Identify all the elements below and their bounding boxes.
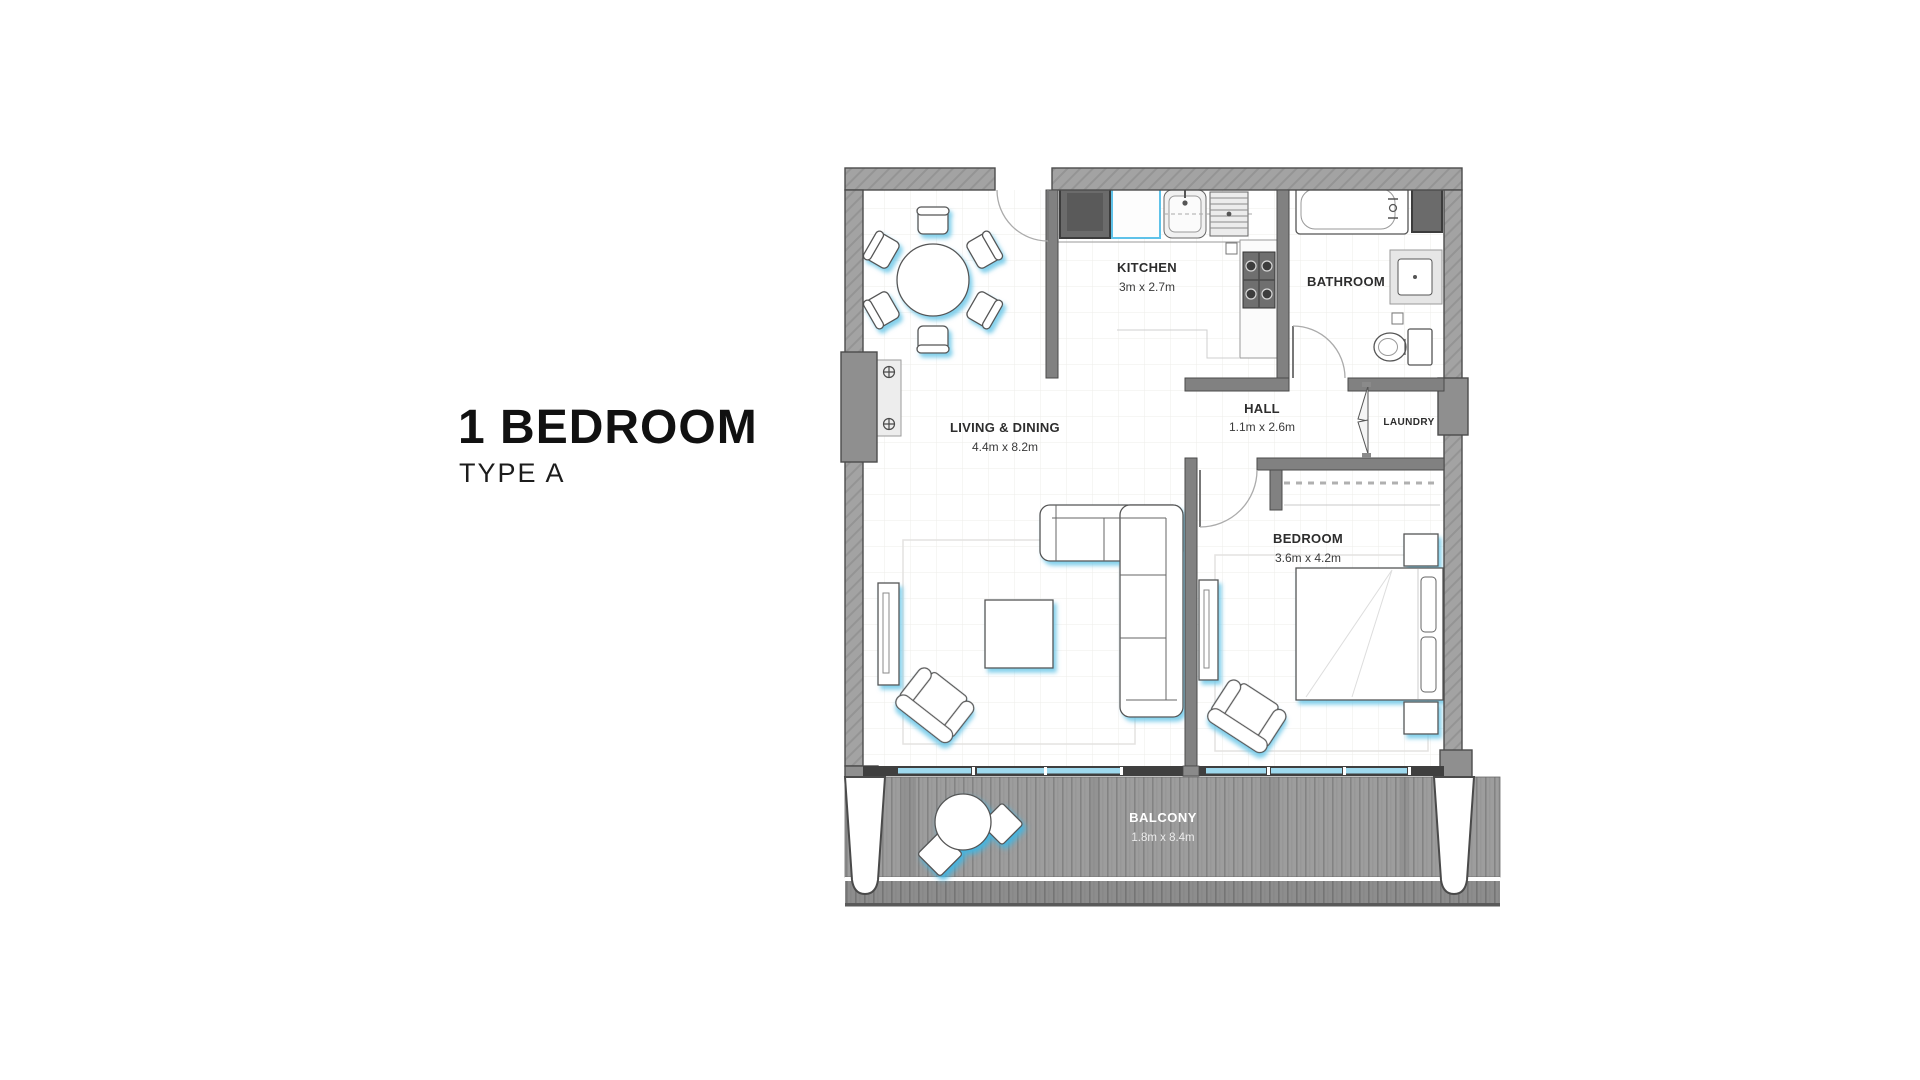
wall-top-left <box>845 168 995 190</box>
bedroom-dims: 3.6m x 4.2m <box>1275 551 1341 565</box>
wall-top-right <box>1052 168 1462 190</box>
planter-right <box>1434 777 1474 894</box>
kitchen-drainer <box>1210 192 1248 236</box>
kitchen-label: KITCHEN <box>1117 260 1177 275</box>
wall-left-column <box>841 352 877 462</box>
vanity-sink <box>1390 250 1442 304</box>
wall-right-stub <box>1440 750 1472 778</box>
wall-panel <box>877 360 901 436</box>
living-dims: 4.4m x 8.2m <box>972 440 1038 454</box>
balcony-dims: 1.8m x 8.4m <box>1131 832 1194 844</box>
wall-right <box>1444 190 1462 790</box>
hall-label: HALL <box>1244 401 1280 416</box>
bedroom-label: BEDROOM <box>1273 531 1343 546</box>
wall-kitchen-bath <box>1277 190 1289 391</box>
wall-wardrobe-stub <box>1270 470 1282 510</box>
balcony-table <box>935 794 991 850</box>
bathroom-small-box <box>1392 313 1403 324</box>
dining-table <box>897 244 969 316</box>
bed <box>1296 568 1443 700</box>
hall-dims: 1.1m x 2.6m <box>1229 420 1295 434</box>
kitchen-dims: 3m x 2.7m <box>1119 280 1175 294</box>
stove <box>1243 252 1275 308</box>
balcony-label: BALCONY <box>1129 810 1197 825</box>
page: 1 BEDROOM TYPE A <box>0 0 1920 1080</box>
laundry-label: LAUNDRY <box>1383 417 1434 428</box>
wall-bedroom-top <box>1257 458 1444 470</box>
kitchen-appliance <box>1112 186 1160 238</box>
bathtub <box>1296 184 1408 234</box>
nightstand <box>1404 534 1438 566</box>
living-console <box>878 583 899 685</box>
glass-front <box>863 766 1444 776</box>
pillow <box>1421 637 1436 692</box>
floor-plan: BALCONY 1.8m x 8.4m <box>0 0 1920 1080</box>
bathroom-shaft <box>1412 184 1442 232</box>
nightstand <box>1404 702 1438 734</box>
coffee-table <box>985 600 1053 668</box>
wall-hall-top-left <box>1185 378 1289 391</box>
planter-left <box>845 777 885 894</box>
wall-living-bedroom <box>1185 458 1197 766</box>
balcony-edge-line <box>845 877 1500 881</box>
bathroom-label: BATHROOM <box>1307 274 1385 289</box>
wall-left <box>845 190 863 766</box>
bedroom-console <box>1199 580 1218 680</box>
living-label: LIVING & DINING <box>950 420 1060 435</box>
pillow <box>1421 577 1436 632</box>
kitchen-small-box <box>1226 243 1237 254</box>
balcony: BALCONY 1.8m x 8.4m <box>845 777 1500 907</box>
